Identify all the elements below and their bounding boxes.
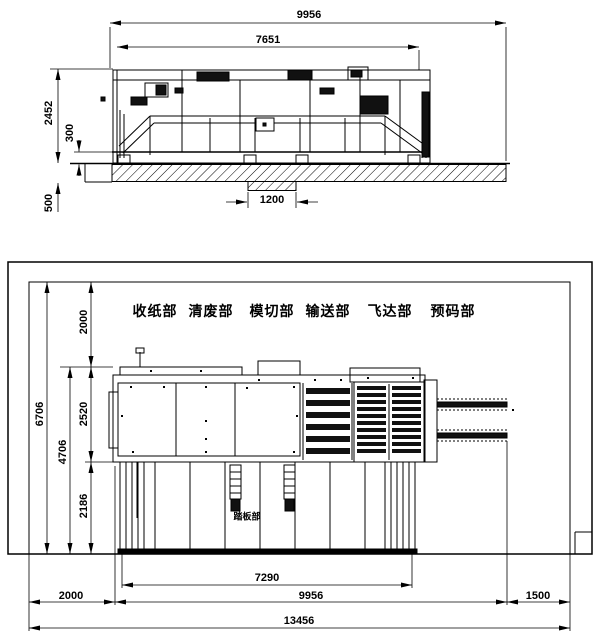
section-label-die-cutting: 模切部 bbox=[250, 301, 295, 321]
elevation-foundation bbox=[70, 164, 510, 191]
dim-room-depth: 6706 bbox=[34, 402, 46, 426]
dim-platform-depth: 2186 bbox=[78, 494, 90, 518]
elevation-machine-body bbox=[101, 67, 430, 163]
dim-body-length: 7651 bbox=[256, 34, 280, 46]
dim-right-clearance: 1500 bbox=[526, 590, 550, 602]
pit-hatch bbox=[248, 182, 296, 191]
dim-machine-height: 2452 bbox=[43, 101, 55, 125]
elevation-view bbox=[50, 23, 510, 212]
ladder-bracket bbox=[230, 465, 241, 511]
plan-machine bbox=[109, 348, 514, 553]
dim-work-area-depth: 4706 bbox=[57, 440, 69, 464]
section-label-prestack: 预码部 bbox=[431, 301, 476, 321]
dim-left-clearance: 2000 bbox=[59, 590, 83, 602]
dim-base-height: 300 bbox=[64, 124, 76, 142]
dim-machine-length: 9956 bbox=[299, 590, 323, 602]
platform-label: 踏板部 bbox=[233, 510, 260, 523]
ladder-bracket bbox=[284, 465, 295, 511]
section-label-feeder: 飞达部 bbox=[368, 301, 413, 321]
feeder-rails bbox=[437, 399, 507, 441]
dim-pit-width: 1200 bbox=[260, 194, 284, 206]
dim-overall-total-length: 13456 bbox=[284, 615, 315, 627]
floor-hatch bbox=[112, 165, 506, 182]
plan-platform bbox=[118, 462, 417, 553]
dim-machine-depth: 2520 bbox=[78, 402, 90, 426]
drawing-sheet: 9956 7651 2452 300 500 1200 收纸部 清废部 模切部 … bbox=[0, 0, 600, 639]
section-label-delivery: 收纸部 bbox=[133, 301, 178, 321]
section-label-conveying: 输送部 bbox=[306, 301, 351, 321]
elevation-railing bbox=[119, 110, 426, 158]
dim-platform-length: 7290 bbox=[255, 572, 279, 584]
dim-overall-length: 9956 bbox=[297, 9, 321, 21]
plan-view bbox=[8, 262, 592, 631]
dim-foundation-depth: 500 bbox=[43, 194, 55, 212]
cad-linework bbox=[0, 0, 600, 639]
section-label-stripping: 清废部 bbox=[189, 301, 234, 321]
dim-top-clearance: 2000 bbox=[78, 310, 90, 334]
